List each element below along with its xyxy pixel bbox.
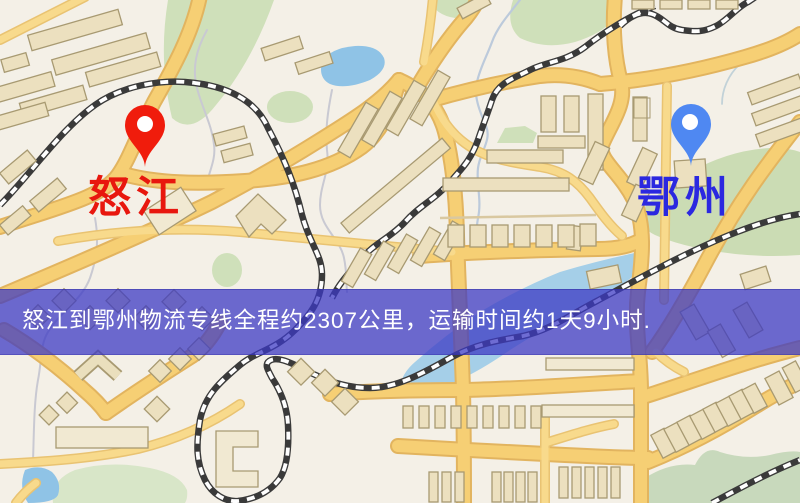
blue-map-pin-icon [668, 101, 714, 169]
route-info-banner: 怒江到鄂州物流专线全程约2307公里，运输时间约1天9小时. [0, 289, 800, 355]
route-info-text: 怒江到鄂州物流专线全程约2307公里，运输时间约1天9小时. [0, 303, 651, 335]
map-image [0, 0, 800, 503]
destination-label: 鄂州 [637, 177, 733, 220]
origin-label: 怒江 [88, 177, 184, 220]
map-container: 怒江 鄂州 怒江到鄂州物流专线全程约2307公里，运输时间约1天9小时. [0, 0, 800, 503]
red-map-pin-icon [122, 102, 168, 170]
